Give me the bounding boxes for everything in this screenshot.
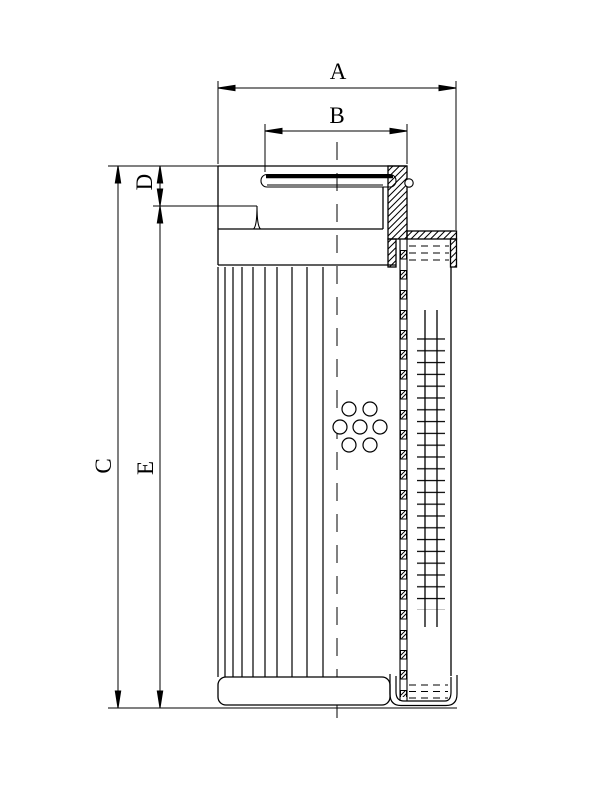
pleated-filter-media (218, 267, 323, 677)
upper-seal-dashes (409, 246, 449, 260)
perforated-tube-wall (400, 239, 407, 701)
dim-label-c: C (91, 458, 116, 473)
flange-strip (407, 231, 457, 239)
dimension-d-e: D E (132, 166, 163, 708)
shell-wall-upper-left (388, 239, 396, 267)
retainer-collar (261, 175, 396, 188)
drawing-page: A B C D E (0, 0, 612, 792)
dim-label-a: A (330, 59, 347, 84)
support-mesh (417, 310, 445, 627)
arrowhead-down (115, 691, 120, 708)
arrowhead-right (439, 85, 456, 90)
arrowhead-up (157, 166, 162, 183)
filter-top-cap (218, 166, 407, 265)
dim-label-e: E (133, 461, 158, 475)
bowl-fluid-dashes (409, 685, 448, 698)
arrowhead-left (218, 85, 235, 90)
dimension-b: B (265, 103, 407, 172)
dim-label-b: B (329, 103, 344, 128)
arrowhead-left (265, 128, 282, 133)
core-perforation-holes (333, 402, 387, 452)
dimension-c: C (91, 166, 121, 708)
dim-label-d: D (132, 174, 157, 191)
arrowhead-right (390, 128, 407, 133)
inner-tube-flare (254, 206, 261, 229)
arrowhead-up (115, 166, 120, 183)
head-wall (388, 166, 407, 239)
head-flange-hatched (388, 166, 457, 267)
technical-drawing-canvas: A B C D E (0, 0, 612, 792)
o-ring-seal (405, 179, 413, 187)
arrowhead-down (157, 691, 162, 708)
filter-bottom-cap (218, 677, 390, 705)
arrowhead-up (157, 206, 162, 223)
shell-wall-upper-right (451, 239, 457, 267)
arrowhead-down (157, 189, 162, 206)
